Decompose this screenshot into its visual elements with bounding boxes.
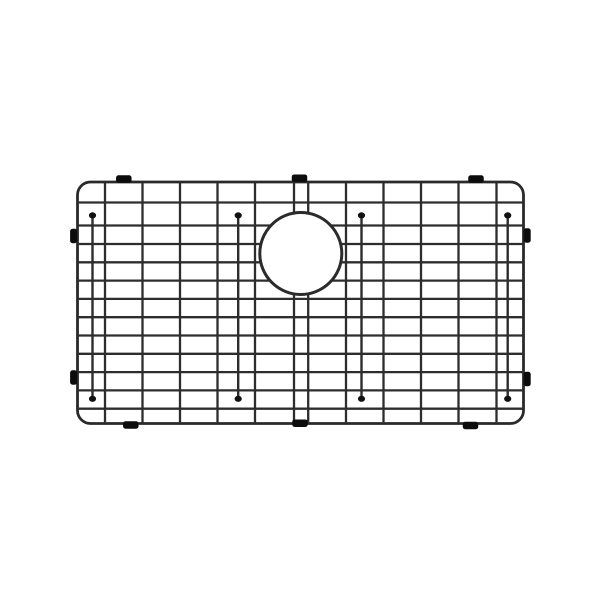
sink-grid-product-image [0,0,600,600]
product-photo [0,0,600,600]
drain-opening [260,213,342,295]
